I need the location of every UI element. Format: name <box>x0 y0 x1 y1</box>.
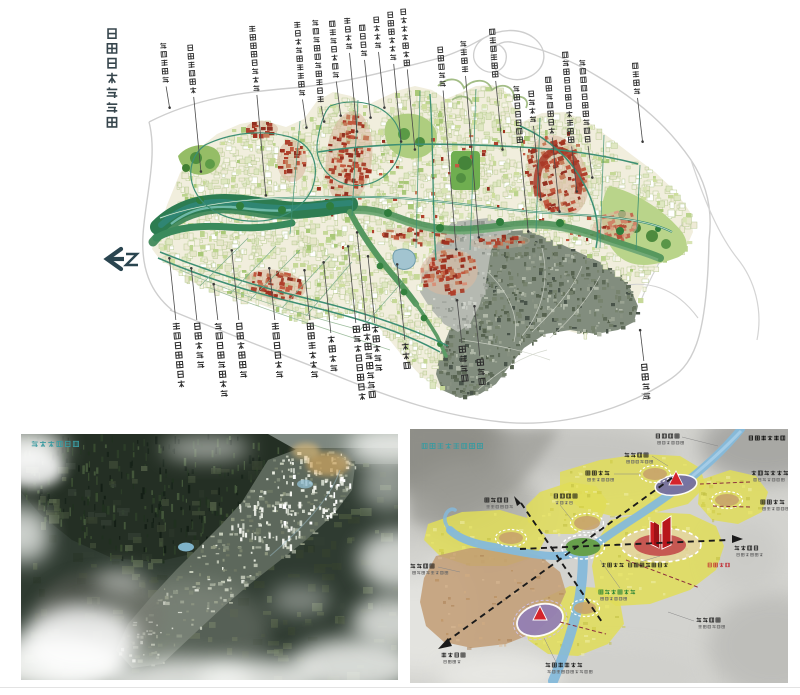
svg-text:7.: 7. <box>641 392 649 402</box>
